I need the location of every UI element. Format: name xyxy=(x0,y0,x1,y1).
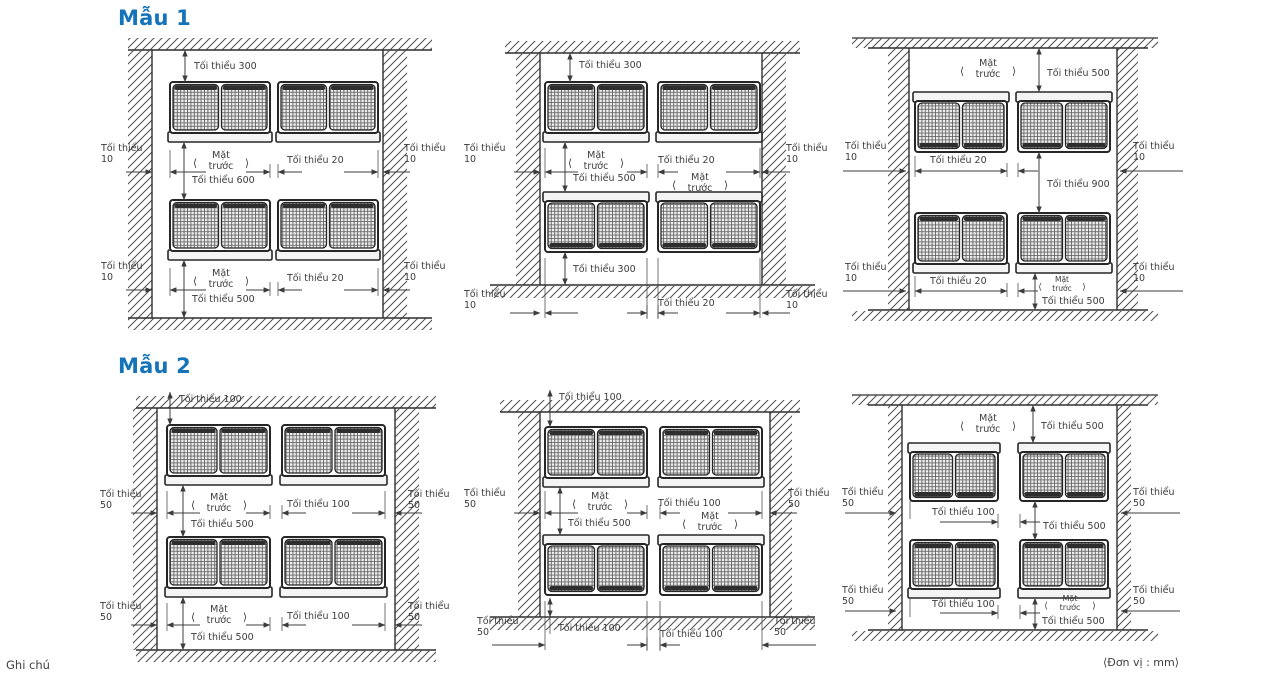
clearance-diagram-canvas: Tối thiểu 300Tối thiểu10⟨⟩MặttrướcTối th… xyxy=(0,0,1280,679)
outdoor-unit xyxy=(1018,540,1110,598)
wall-hatch xyxy=(505,41,800,53)
wall-hatch xyxy=(490,286,815,298)
unit-grille-cap xyxy=(337,541,381,546)
wall-hatch xyxy=(128,318,432,330)
dimension-label: Tối thiểu xyxy=(100,261,143,272)
unit-grille-panel xyxy=(281,85,327,131)
front-side-label: trước xyxy=(584,161,609,172)
front-side-label: Mặt xyxy=(212,150,230,161)
dimension-label: 10 xyxy=(786,300,798,311)
unit-grille-cap xyxy=(283,86,326,91)
dimension-label: Tối thiểu xyxy=(463,289,506,300)
angle-bracket-left-icon: ⟨ xyxy=(568,158,572,170)
front-side-label: trước xyxy=(1060,602,1081,612)
front-side-label: trước xyxy=(698,522,723,533)
front-side-label: trước xyxy=(207,503,232,514)
unit-grille-panel xyxy=(913,543,953,587)
outdoor-unit xyxy=(280,425,387,485)
angle-bracket-right-icon: ⟩ xyxy=(1012,421,1016,433)
unit-grille-panel xyxy=(598,85,645,131)
unit-grille-panel xyxy=(1066,103,1108,149)
front-side-label: trước xyxy=(588,502,613,513)
dimension-label: Tối thiểu 20 xyxy=(929,276,987,287)
dimension-label: Tối thiểu 100 xyxy=(659,629,723,640)
dimension-label: Tối thiểu xyxy=(463,143,506,154)
wall-hatch xyxy=(852,311,1158,321)
unit-grille-panel xyxy=(713,430,760,476)
outdoor-unit xyxy=(165,537,272,597)
dimension-label: Tối thiểu 300 xyxy=(193,61,257,72)
installation-clearance-sheet: Tối thiểu 300Tối thiểu10⟨⟩MặttrướcTối th… xyxy=(0,0,1280,679)
wall-hatch xyxy=(490,618,815,630)
unit-grille-cap xyxy=(714,431,758,436)
dimension-label: Tối thiểu xyxy=(99,601,142,612)
unit-grille-panel xyxy=(548,85,595,131)
unit-grille-panel xyxy=(598,430,645,476)
unit-grille-cap xyxy=(599,431,643,436)
angle-bracket-right-icon: ⟩ xyxy=(1092,602,1096,612)
front-side-label: Mặt xyxy=(587,150,605,161)
unit-grille-panel xyxy=(335,428,382,474)
wall-hatch xyxy=(136,650,436,662)
outdoor-unit xyxy=(168,200,272,260)
unit-grille-cap xyxy=(283,204,326,209)
dimension-label: Tối thiểu xyxy=(773,616,816,627)
dimension-label: 50 xyxy=(842,498,854,509)
wall-hatch xyxy=(888,48,909,310)
unit-grille-panel xyxy=(1066,543,1106,587)
dimension-label: 10 xyxy=(1133,152,1145,163)
dimension-label: Tối thiểu 20 xyxy=(657,155,715,166)
unit-grille-panel xyxy=(170,540,217,586)
unit-grille-panel xyxy=(956,543,996,587)
dimension-label: 50 xyxy=(774,627,786,638)
dimension-label: Tối thiểu xyxy=(99,489,142,500)
dimension-label: Tối thiểu xyxy=(476,616,519,627)
unit-grille-panel xyxy=(220,428,267,474)
unit-grille-cap xyxy=(957,544,994,549)
outdoor-unit xyxy=(543,535,649,595)
dimension-label: Tối thiểu xyxy=(787,488,830,499)
unit-grille-panel xyxy=(913,454,953,498)
dimension-label: 10 xyxy=(1133,273,1145,284)
unit-grille-panel xyxy=(598,203,645,249)
angle-bracket-left-icon: ⟨ xyxy=(191,500,195,512)
dimension-label: 10 xyxy=(101,272,113,283)
dimension-label: Tối thiểu 100 xyxy=(931,507,995,518)
unit-grille-cap xyxy=(665,586,709,591)
unit-grille-cap xyxy=(331,204,374,209)
dimension-label: 10 xyxy=(101,154,113,165)
angle-bracket-left-icon: ⟨ xyxy=(1044,602,1048,612)
unit-grille-panel xyxy=(281,203,327,249)
dimension-label: Tối thiểu 100 xyxy=(657,498,721,509)
dimension-label: Tối thiểu xyxy=(785,289,828,300)
angle-bracket-left-icon: ⟨ xyxy=(960,66,964,78)
dimension-label: Tối thiểu 500 xyxy=(1046,68,1110,79)
front-side-label: Mặt xyxy=(979,413,997,424)
dimension-label: Tối thiểu 100 xyxy=(558,392,622,403)
section-2-title: Mẫu 2 xyxy=(118,354,191,378)
outdoor-unit xyxy=(280,537,387,597)
unit-grille-cap xyxy=(331,86,374,91)
dimension-label: Tối thiểu xyxy=(403,143,446,154)
unit-grille-cap xyxy=(172,541,216,546)
front-side-label: Mặt xyxy=(210,604,228,615)
dimension-label: 50 xyxy=(100,500,112,511)
wall-hatch xyxy=(762,53,786,285)
unit-grille-cap xyxy=(599,243,643,248)
unit-grille-panel xyxy=(220,540,267,586)
dimension-label: Tối thiểu xyxy=(1132,487,1175,498)
unit-grille-panel xyxy=(548,430,595,476)
unit-grille-cap xyxy=(1023,217,1062,222)
wall-hatch xyxy=(852,38,1158,48)
dimension-label: Tối thiểu 500 xyxy=(1040,421,1104,432)
dimension-label: 10 xyxy=(845,273,857,284)
dimension-label: Tối thiểu 500 xyxy=(1041,296,1105,307)
unit-grille-cap xyxy=(599,86,643,91)
unit-grille-panel xyxy=(663,546,710,592)
angle-bracket-right-icon: ⟩ xyxy=(620,158,624,170)
unit-grille-cap xyxy=(175,86,218,91)
outdoor-unit xyxy=(913,213,1009,273)
unit-grille-cap xyxy=(1025,492,1062,497)
dimension-label: 50 xyxy=(408,612,420,623)
outdoor-unit xyxy=(543,192,649,252)
dimension-label: Tối thiểu 20 xyxy=(657,298,715,309)
dimension-label: 50 xyxy=(464,499,476,510)
dimension-label: Tối thiểu xyxy=(100,143,143,154)
unit-grille-cap xyxy=(599,586,643,591)
angle-bracket-right-icon: ⟩ xyxy=(245,158,249,170)
dimension-label: Tối thiểu xyxy=(844,262,887,273)
wall-hatch xyxy=(500,400,800,412)
unit-grille-panel xyxy=(713,546,760,592)
unit-grille-cap xyxy=(172,429,216,434)
dimension-label: Tối thiểu xyxy=(841,585,884,596)
unit-grille-panel xyxy=(1066,454,1106,498)
outdoor-unit xyxy=(656,192,762,252)
outdoor-unit xyxy=(913,92,1009,152)
outdoor-unit xyxy=(276,200,380,260)
unit-grille-cap xyxy=(287,429,331,434)
front-side-label: Mặt xyxy=(691,172,709,183)
unit-grille-cap xyxy=(550,431,594,436)
dimension-label: 10 xyxy=(464,300,476,311)
dimension-label: 50 xyxy=(1133,498,1145,509)
unit-grille-panel xyxy=(598,546,645,592)
angle-bracket-left-icon: ⟨ xyxy=(572,499,576,511)
dimension-label: Tối thiểu 20 xyxy=(929,155,987,166)
unit-grille-cap xyxy=(964,143,1003,148)
outdoor-unit xyxy=(656,82,762,142)
unit-grille-cap xyxy=(665,431,709,436)
unit-grille-cap xyxy=(663,243,707,248)
unit-grille-cap xyxy=(920,217,959,222)
unit-grille-cap xyxy=(964,217,1003,222)
wall-hatch xyxy=(128,50,152,318)
dimension-label: Tối thiểu xyxy=(1132,262,1175,273)
unit-grille-panel xyxy=(330,203,376,249)
outdoor-unit xyxy=(543,427,649,487)
unit-grille-cap xyxy=(712,86,756,91)
dimension-label: 50 xyxy=(477,627,489,638)
unit-grille-panel xyxy=(335,540,382,586)
notes-label: Ghi chú xyxy=(6,658,50,672)
unit-grille-cap xyxy=(663,86,707,91)
dimension-label: Tối thiểu xyxy=(407,601,450,612)
dimension-label: Tối thiểu xyxy=(1132,585,1175,596)
unit-grille-panel xyxy=(170,428,217,474)
dimension-label: Tối thiểu xyxy=(407,489,450,500)
front-side-label: Mặt xyxy=(212,268,230,279)
angle-bracket-right-icon: ⟩ xyxy=(724,180,728,192)
angle-bracket-right-icon: ⟩ xyxy=(243,500,247,512)
angle-bracket-left-icon: ⟨ xyxy=(193,276,197,288)
outdoor-unit xyxy=(165,425,272,485)
angle-bracket-right-icon: ⟩ xyxy=(1082,283,1085,293)
unit-grille-panel xyxy=(918,103,960,149)
dimension-label: Tối thiểu 100 xyxy=(178,394,242,405)
wall-hatch xyxy=(128,38,432,50)
angle-bracket-right-icon: ⟩ xyxy=(624,499,628,511)
dimension-label: Tối thiểu 100 xyxy=(286,499,350,510)
outdoor-unit xyxy=(1016,92,1112,152)
front-side-label: trước xyxy=(1052,284,1072,293)
unit-of-measure-note: ⟨Đơn vị : mm⟩ xyxy=(1103,656,1179,669)
front-side-label: Mặt xyxy=(979,58,997,69)
unit-grille-panel xyxy=(222,203,268,249)
front-side-label: trước xyxy=(209,279,234,290)
unit-grille-cap xyxy=(1067,492,1104,497)
unit-grille-cap xyxy=(1067,143,1106,148)
dimension-label: 10 xyxy=(404,272,416,283)
unit-grille-cap xyxy=(550,86,594,91)
dimension-label: 50 xyxy=(788,499,800,510)
dimension-label: Tối thiểu 600 xyxy=(191,175,255,186)
dimension-label: Tối thiểu xyxy=(1132,141,1175,152)
unit-grille-panel xyxy=(956,454,996,498)
dimension-label: 50 xyxy=(100,612,112,623)
unit-grille-cap xyxy=(1067,217,1106,222)
dimension-label: Tối thiểu 500 xyxy=(190,632,254,643)
front-side-label: trước xyxy=(209,161,234,172)
section-1-title: Mẫu 1 xyxy=(118,6,191,30)
unit-grille-panel xyxy=(330,85,376,131)
unit-grille-panel xyxy=(963,103,1005,149)
wall-hatch xyxy=(133,408,157,650)
wall-hatch xyxy=(1117,405,1131,630)
wall-hatch xyxy=(516,53,540,285)
front-side-label: trước xyxy=(976,424,1001,435)
unit-grille-panel xyxy=(222,85,268,131)
unit-grille-panel xyxy=(548,203,595,249)
outdoor-unit xyxy=(908,540,1000,598)
unit-grille-panel xyxy=(1023,543,1063,587)
unit-grille-panel xyxy=(918,216,960,262)
dimension-label: Tối thiểu xyxy=(403,261,446,272)
dimension-label: 50 xyxy=(1133,596,1145,607)
unit-grille-cap xyxy=(712,243,756,248)
front-side-label: Mặt xyxy=(210,492,228,503)
dimension-label: Tối thiểu 20 xyxy=(286,155,344,166)
unit-grille-panel xyxy=(1021,216,1063,262)
outdoor-unit xyxy=(908,443,1000,501)
dimension-label: Tối thiểu 500 xyxy=(567,518,631,529)
front-side-label: Mặt xyxy=(591,491,609,502)
outdoor-unit xyxy=(543,82,649,142)
dimension-label: Tối thiểu 20 xyxy=(286,273,344,284)
dimension-label: 50 xyxy=(408,500,420,511)
angle-bracket-left-icon: ⟨ xyxy=(191,612,195,624)
outdoor-unit xyxy=(168,82,272,142)
unit-grille-cap xyxy=(550,243,594,248)
unit-grille-panel xyxy=(285,540,332,586)
unit-grille-panel xyxy=(1023,454,1063,498)
angle-bracket-left-icon: ⟨ xyxy=(1038,283,1041,293)
dimension-label: Tối thiểu 300 xyxy=(578,60,642,71)
unit-grille-panel xyxy=(661,203,708,249)
unit-grille-cap xyxy=(915,492,952,497)
front-side-label: Mặt xyxy=(1055,275,1069,284)
front-side-label: trước xyxy=(976,69,1001,80)
angle-bracket-right-icon: ⟩ xyxy=(245,276,249,288)
dimension-label: 10 xyxy=(464,154,476,165)
unit-grille-cap xyxy=(175,204,218,209)
front-side-label: Mặt xyxy=(701,511,719,522)
wall-hatch xyxy=(852,395,1158,405)
unit-grille-panel xyxy=(173,85,219,131)
wall-hatch xyxy=(518,412,540,617)
unit-grille-cap xyxy=(550,586,594,591)
unit-grille-panel xyxy=(1066,216,1108,262)
dimension-label: 50 xyxy=(842,596,854,607)
dimension-label: 10 xyxy=(845,152,857,163)
unit-grille-cap xyxy=(222,541,266,546)
unit-grille-panel xyxy=(711,85,758,131)
angle-bracket-left-icon: ⟨ xyxy=(960,421,964,433)
angle-bracket-right-icon: ⟩ xyxy=(734,519,738,531)
angle-bracket-left-icon: ⟨ xyxy=(682,519,686,531)
unit-grille-panel xyxy=(711,203,758,249)
wall-hatch xyxy=(770,412,792,617)
dimension-label: Tối thiểu xyxy=(841,487,884,498)
dimension-label: 10 xyxy=(404,154,416,165)
outdoor-unit xyxy=(1018,443,1110,501)
unit-grille-cap xyxy=(337,429,381,434)
dimension-label: Tối thiểu 500 xyxy=(190,519,254,530)
unit-grille-cap xyxy=(920,143,959,148)
dimension-label: Tối thiểu 900 xyxy=(1046,179,1110,190)
unit-grille-cap xyxy=(223,86,266,91)
dimension-label: Tối thiểu 100 xyxy=(931,599,995,610)
angle-bracket-left-icon: ⟨ xyxy=(672,180,676,192)
unit-grille-cap xyxy=(1067,544,1104,549)
unit-grille-panel xyxy=(548,546,595,592)
dimension-label: Tối thiểu 500 xyxy=(1042,521,1106,532)
unit-grille-cap xyxy=(223,204,266,209)
dimension-label: Tối thiểu xyxy=(463,488,506,499)
unit-grille-panel xyxy=(173,203,219,249)
front-side-label: trước xyxy=(688,183,713,194)
wall-hatch xyxy=(852,631,1158,641)
unit-grille-panel xyxy=(1021,103,1063,149)
unit-grille-cap xyxy=(222,429,266,434)
unit-grille-panel xyxy=(663,430,710,476)
unit-grille-panel xyxy=(661,85,708,131)
dimension-label: Tối thiểu 300 xyxy=(572,264,636,275)
front-side-label: trước xyxy=(207,615,232,626)
unit-grille-cap xyxy=(1023,143,1062,148)
angle-bracket-right-icon: ⟩ xyxy=(1012,66,1016,78)
dimension-label: Tối thiểu 100 xyxy=(286,611,350,622)
outdoor-unit xyxy=(658,427,764,487)
wall-hatch xyxy=(888,405,902,630)
unit-grille-panel xyxy=(285,428,332,474)
unit-grille-panel xyxy=(963,216,1005,262)
outdoor-unit xyxy=(658,535,764,595)
unit-grille-cap xyxy=(915,544,952,549)
unit-grille-cap xyxy=(1025,544,1062,549)
dimension-label: Tối thiểu xyxy=(844,141,887,152)
unit-grille-cap xyxy=(714,586,758,591)
dimension-label: Tối thiểu 500 xyxy=(572,173,636,184)
dimension-label: Tối thiểu 100 xyxy=(557,623,621,634)
dimension-label: Tối thiểu 500 xyxy=(191,294,255,305)
unit-grille-cap xyxy=(287,541,331,546)
angle-bracket-right-icon: ⟩ xyxy=(243,612,247,624)
dimension-label: 10 xyxy=(786,154,798,165)
outdoor-unit xyxy=(1016,213,1112,273)
unit-grille-cap xyxy=(957,492,994,497)
dimension-label: Tối thiểu 500 xyxy=(1041,616,1105,627)
angle-bracket-left-icon: ⟨ xyxy=(193,158,197,170)
outdoor-unit xyxy=(276,82,380,142)
dimension-label: Tối thiểu xyxy=(785,143,828,154)
